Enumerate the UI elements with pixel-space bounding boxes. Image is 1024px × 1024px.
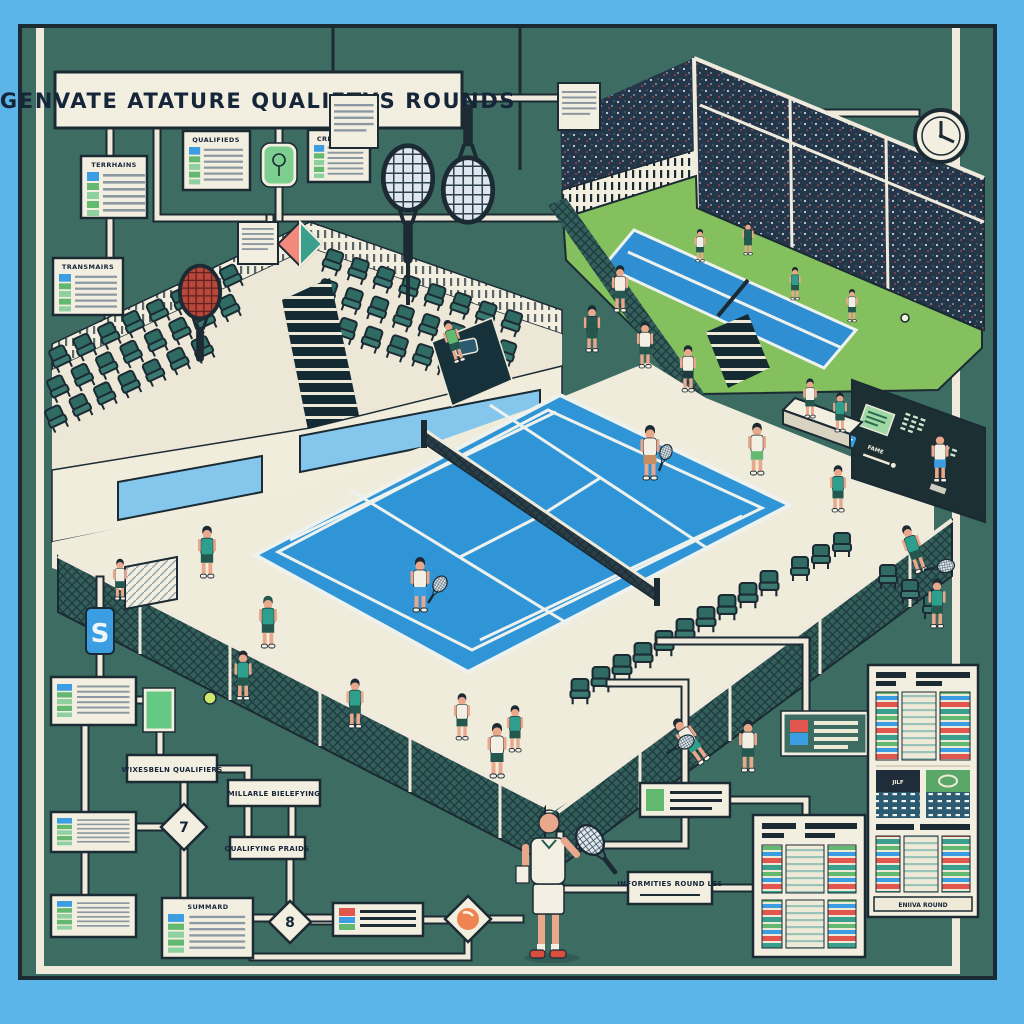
green-node <box>145 690 173 730</box>
title-text: GENVATE ATATURE QUALIFTYS ROUNDS <box>0 89 516 113</box>
list-card <box>51 895 136 937</box>
illustration-canvas: FAME <box>0 0 1024 1024</box>
flowchart-card-summard: SUMMARD <box>162 898 253 958</box>
flowchart-label-1: WIXESBELN QUALIFIERS <box>122 755 223 782</box>
s-badge-icon: S <box>86 608 114 654</box>
clock-icon <box>915 110 967 162</box>
flowchart-label-2: MILLARLE BIELEFYING <box>228 780 321 806</box>
diamond-glyph: 8 <box>285 915 295 931</box>
list-card <box>51 812 136 852</box>
bracket-caption: ENIIVA ROUND <box>874 897 972 911</box>
s-badge-letter: S <box>91 619 110 649</box>
label-text: INFORMITIES ROUND LES <box>617 880 723 888</box>
hatched-panel <box>125 557 177 609</box>
caption-text: ENIIVA ROUND <box>898 902 947 909</box>
flowchart-label-4: INFORMITIES ROUND LES <box>617 872 723 904</box>
label-text: MILLARLE BIELEFYING <box>228 790 321 798</box>
tennis-ball-icon <box>204 692 216 704</box>
document-icon <box>330 95 378 148</box>
flowchart-card-terrains: TERRHAINS <box>81 156 147 218</box>
flowchart-card-transmairs: TRANSMAIRS <box>53 258 123 315</box>
card-header: QUALIFIEDS <box>192 136 240 144</box>
flowchart-label-3: QUALIFYING PRAIDS <box>225 837 310 859</box>
card-header: TERRHAINS <box>91 161 137 169</box>
bracket-panel-2: JILF ENIIVA ROUND <box>868 665 978 917</box>
title-banner: GENVATE ATATURE QUALIFTYS ROUNDS <box>0 72 516 128</box>
flowchart-card-qualifieds: QUALIFIEDS <box>183 131 250 190</box>
score-card-code: JILF <box>891 780 904 786</box>
mini-card-green <box>640 783 730 817</box>
card-header: SUMMARD <box>187 903 228 911</box>
diamond-glyph: 7 <box>179 820 189 836</box>
score-card-green <box>926 770 970 818</box>
card-header: TRANSMAIRS <box>62 263 114 271</box>
mini-card-teal <box>781 711 869 756</box>
label-text: WIXESBELN QUALIFIERS <box>122 766 223 774</box>
mini-card-red <box>333 903 423 936</box>
score-card-dark: JILF <box>876 770 920 818</box>
racket-badge-icon <box>261 143 297 187</box>
document-icon <box>558 83 600 130</box>
label-text: QUALIFYING PRAIDS <box>225 845 310 853</box>
bracket-panel-1 <box>753 815 865 957</box>
tennis-ball-icon <box>901 314 909 322</box>
list-card <box>51 677 136 725</box>
